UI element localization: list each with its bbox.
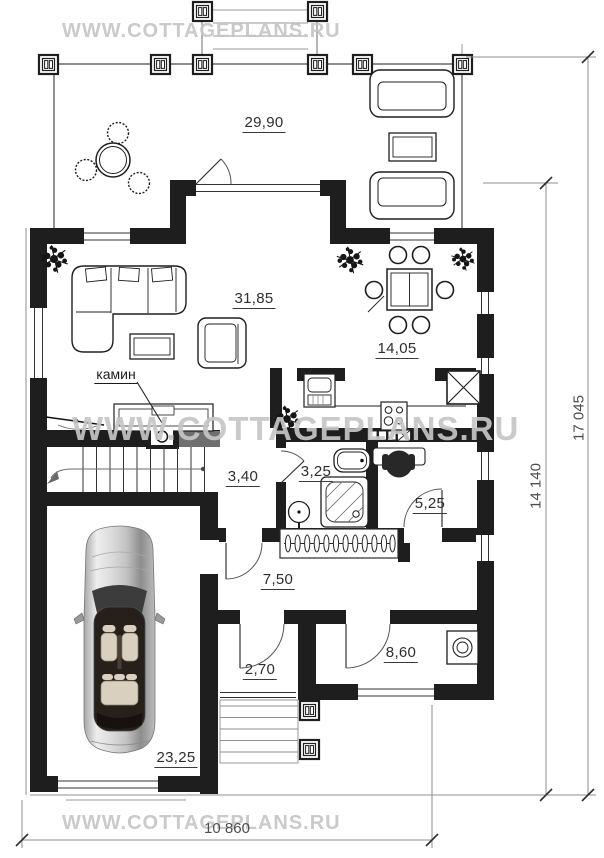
bathtub-icon: [334, 449, 370, 472]
terrace-sofa-icons: [370, 70, 454, 219]
shower-icon: [321, 477, 368, 527]
porch-steps-icon: [220, 700, 298, 763]
plant-icon: [451, 247, 474, 270]
room-area-garage: 23,25: [154, 749, 197, 768]
room-area-vestibule: 2,70: [243, 661, 277, 680]
terrace-table-set-icon: [76, 123, 150, 194]
stairs-icon: [47, 447, 205, 492]
dimension-overall-width: 10 860: [204, 820, 250, 837]
car-icon: [74, 526, 165, 753]
watermark-bottom: WWW.COTTAGEPLANS.RU: [62, 812, 341, 835]
wardrobe-icon: [280, 529, 398, 558]
room-area-dining: 14,05: [375, 340, 418, 359]
watermark-middle: WWW.COTTAGEPLANS.RU: [72, 410, 519, 448]
room-area-hall: 3,40: [226, 468, 260, 487]
dining-set-icon: [366, 247, 454, 334]
coffee-table-icon: [130, 334, 174, 359]
dimension-house-depth: 14 140: [528, 463, 545, 509]
washbasin-icon: [289, 502, 310, 529]
room-area-living: 31,85: [232, 290, 275, 309]
room-area-pantry: 5,25: [413, 495, 447, 514]
washing-machine-icon: [447, 631, 478, 664]
desk-chair-icon: [373, 448, 425, 478]
room-area-terrace: 29,90: [242, 114, 285, 133]
dimension-overall-depth: 17 045: [571, 395, 588, 441]
plant-icon: [337, 247, 363, 273]
porch-columns: [300, 701, 319, 759]
room-area-bathroom: 3,25: [299, 463, 333, 482]
armchair-icon: [198, 318, 246, 368]
watermark-top: WWW.COTTAGEPLANS.RU: [62, 20, 341, 43]
fireplace-label: камин: [94, 366, 137, 384]
room-area-boiler: 8,60: [384, 644, 418, 663]
floor-plan: WWW.COTTAGEPLANS.RU WWW.COTTAGEPLANS.RU …: [0, 0, 604, 858]
room-area-corridor: 7,50: [261, 571, 295, 590]
